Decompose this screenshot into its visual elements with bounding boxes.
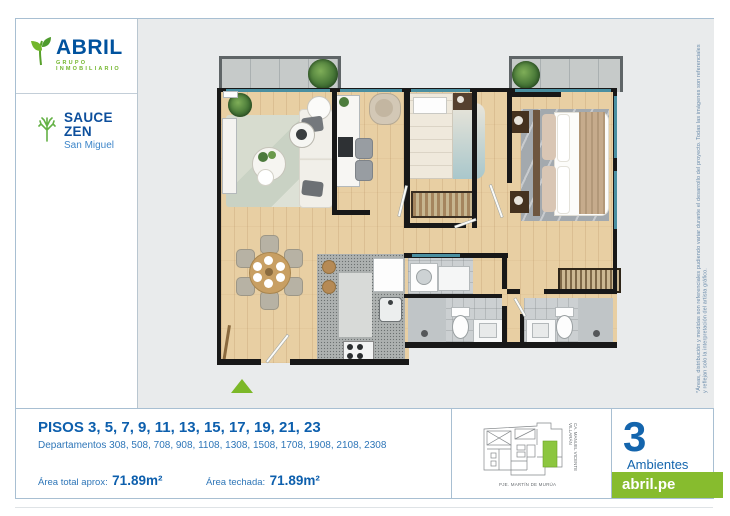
brochure-page: ABRIL GRUPO INMOBILIARIO SAUCE ZEN San M… [0, 0, 730, 516]
dinner-plate [253, 262, 262, 271]
ambientes-label: Ambientes [627, 457, 688, 472]
abril-logo: ABRIL GRUPO INMOBILIARIO [30, 37, 137, 72]
entrance-arrow-icon [231, 379, 253, 393]
disclaimer-text: *Áreas, distribución y medidas son refer… [696, 41, 710, 393]
sauce-zen-tree-icon [36, 116, 58, 147]
wall-master-left [507, 88, 512, 183]
wall-corridor-right [520, 314, 524, 342]
bar-stool [322, 280, 336, 294]
nightstand-lamp [514, 196, 523, 205]
wall-corridor-left [502, 306, 507, 348]
keyplan-street-bottom: PJE. MARTÍN DE MURÚA [499, 482, 556, 487]
table-centerpiece [265, 268, 273, 276]
band-divider [451, 409, 452, 499]
table-plant [258, 152, 268, 162]
exterior-patch [409, 348, 617, 363]
bed2-pillow [413, 97, 447, 114]
page-shadow-line [15, 507, 713, 508]
wall-master-bottom [544, 289, 617, 294]
wall-corridor-left [502, 253, 507, 289]
wall-laundry-bath1 [404, 294, 502, 298]
keyplan: PJE. MARTÍN DE MURÚA CA. MANUEL VICENTE … [481, 421, 573, 487]
wall-left [217, 88, 221, 365]
dinner-plate [264, 256, 273, 265]
nightstand-lamp [457, 96, 464, 103]
floorplan-area: *Áreas, distribución y medidas son refer… [137, 19, 714, 409]
window-balcony-right [515, 89, 611, 92]
dinner-plate [253, 273, 262, 282]
wall-study-bottom [332, 210, 370, 215]
area-total-value: 71.89m² [112, 473, 162, 488]
keyplan-street-right: CA. MANUEL VICENTE VILLARÁN [568, 423, 578, 481]
nightstand-lamp [514, 116, 523, 125]
dinner-plate [264, 279, 273, 288]
window-bedroom2 [411, 89, 470, 92]
sink-basin [479, 323, 497, 338]
project-district: San Miguel [64, 140, 137, 151]
master-headboard [533, 110, 540, 216]
window-balcony-left [226, 89, 330, 92]
master-pillow-white [557, 166, 570, 214]
armchair-seat [375, 99, 393, 117]
departments-list: Departamentos 308, 508, 708, 908, 1108, … [38, 440, 386, 451]
stove-burner [357, 344, 363, 350]
desk-plant [339, 97, 349, 107]
sink-basin [532, 323, 549, 338]
outer-frame: ABRIL GRUPO INMOBILIARIO SAUCE ZEN San M… [15, 18, 714, 499]
desk-chair [355, 160, 373, 181]
wall-master-bottom [507, 289, 520, 294]
shower-drain [421, 330, 428, 337]
keyplan-drawing [481, 421, 567, 481]
coffee-table-tray [296, 129, 307, 140]
window-master-right [614, 171, 617, 229]
window-master-right [614, 96, 617, 158]
area-total-label: Área total aprox: [38, 477, 108, 488]
wall-living-study [332, 88, 337, 214]
logo-column: ABRIL GRUPO INMOBILIARIO SAUCE ZEN San M… [16, 19, 137, 408]
bed-throw-blanket [579, 112, 605, 214]
abril-wordmark: ABRIL [56, 38, 137, 58]
wall-bottom [290, 359, 409, 365]
ac-slider-mark [223, 91, 238, 98]
toilet [452, 315, 469, 339]
wall-bedroom2-right [472, 88, 477, 228]
project-name: SAUCE ZEN [64, 111, 137, 139]
area-roofed-value: 71.89m² [270, 473, 320, 488]
kitchen-floor [339, 273, 372, 337]
window-laundry [412, 254, 460, 257]
shower-drain [593, 330, 600, 337]
desk-chair [355, 138, 373, 159]
bar-stool [322, 260, 336, 274]
area-total: Área total aprox: 71.89m² [38, 472, 162, 490]
fridge [373, 258, 404, 292]
tv-console [222, 118, 237, 194]
dinner-plate [276, 273, 285, 282]
abril-tagline: GRUPO INMOBILIARIO [56, 60, 137, 72]
wall-study-bedroom2 [404, 88, 410, 228]
wall-bath-bottom [405, 342, 617, 348]
master-pillow-white [557, 114, 570, 162]
bedroom2-dresser [411, 191, 474, 218]
abril-leaf-icon [30, 37, 52, 72]
ambientes-count: 3 [623, 413, 646, 460]
master-pillow [542, 114, 556, 160]
laundry-counter [438, 266, 470, 291]
project-logo: SAUCE ZEN San Miguel [36, 111, 137, 151]
website-link[interactable]: abril.pe [612, 472, 723, 498]
plant-balcony-right [512, 61, 540, 89]
sofa-pillow [301, 180, 324, 197]
info-band: PISOS 3, 5, 7, 9, 11, 13, 15, 17, 19, 21… [16, 408, 713, 498]
washer-door [416, 269, 432, 285]
area-roofed: Área techada: 71.89m² [206, 472, 320, 490]
bedroom2-nightstand [453, 93, 474, 110]
keyplan-highlighted-unit [543, 441, 557, 467]
wall-bottom [217, 359, 261, 365]
master-pillow [542, 166, 556, 212]
faucet [388, 300, 393, 305]
area-roofed-label: Área techada: [206, 477, 265, 488]
table-plant [268, 151, 276, 159]
logo-divider [16, 93, 137, 94]
table-dish [257, 169, 274, 186]
palm-plant-balcony-left [308, 59, 338, 89]
dinner-plate [276, 262, 285, 271]
window-study [340, 89, 402, 92]
toilet [556, 315, 573, 339]
monitor [338, 137, 353, 157]
floors-title: PISOS 3, 5, 7, 9, 11, 13, 15, 17, 19, 21… [38, 419, 321, 436]
stove-burner [347, 344, 353, 350]
